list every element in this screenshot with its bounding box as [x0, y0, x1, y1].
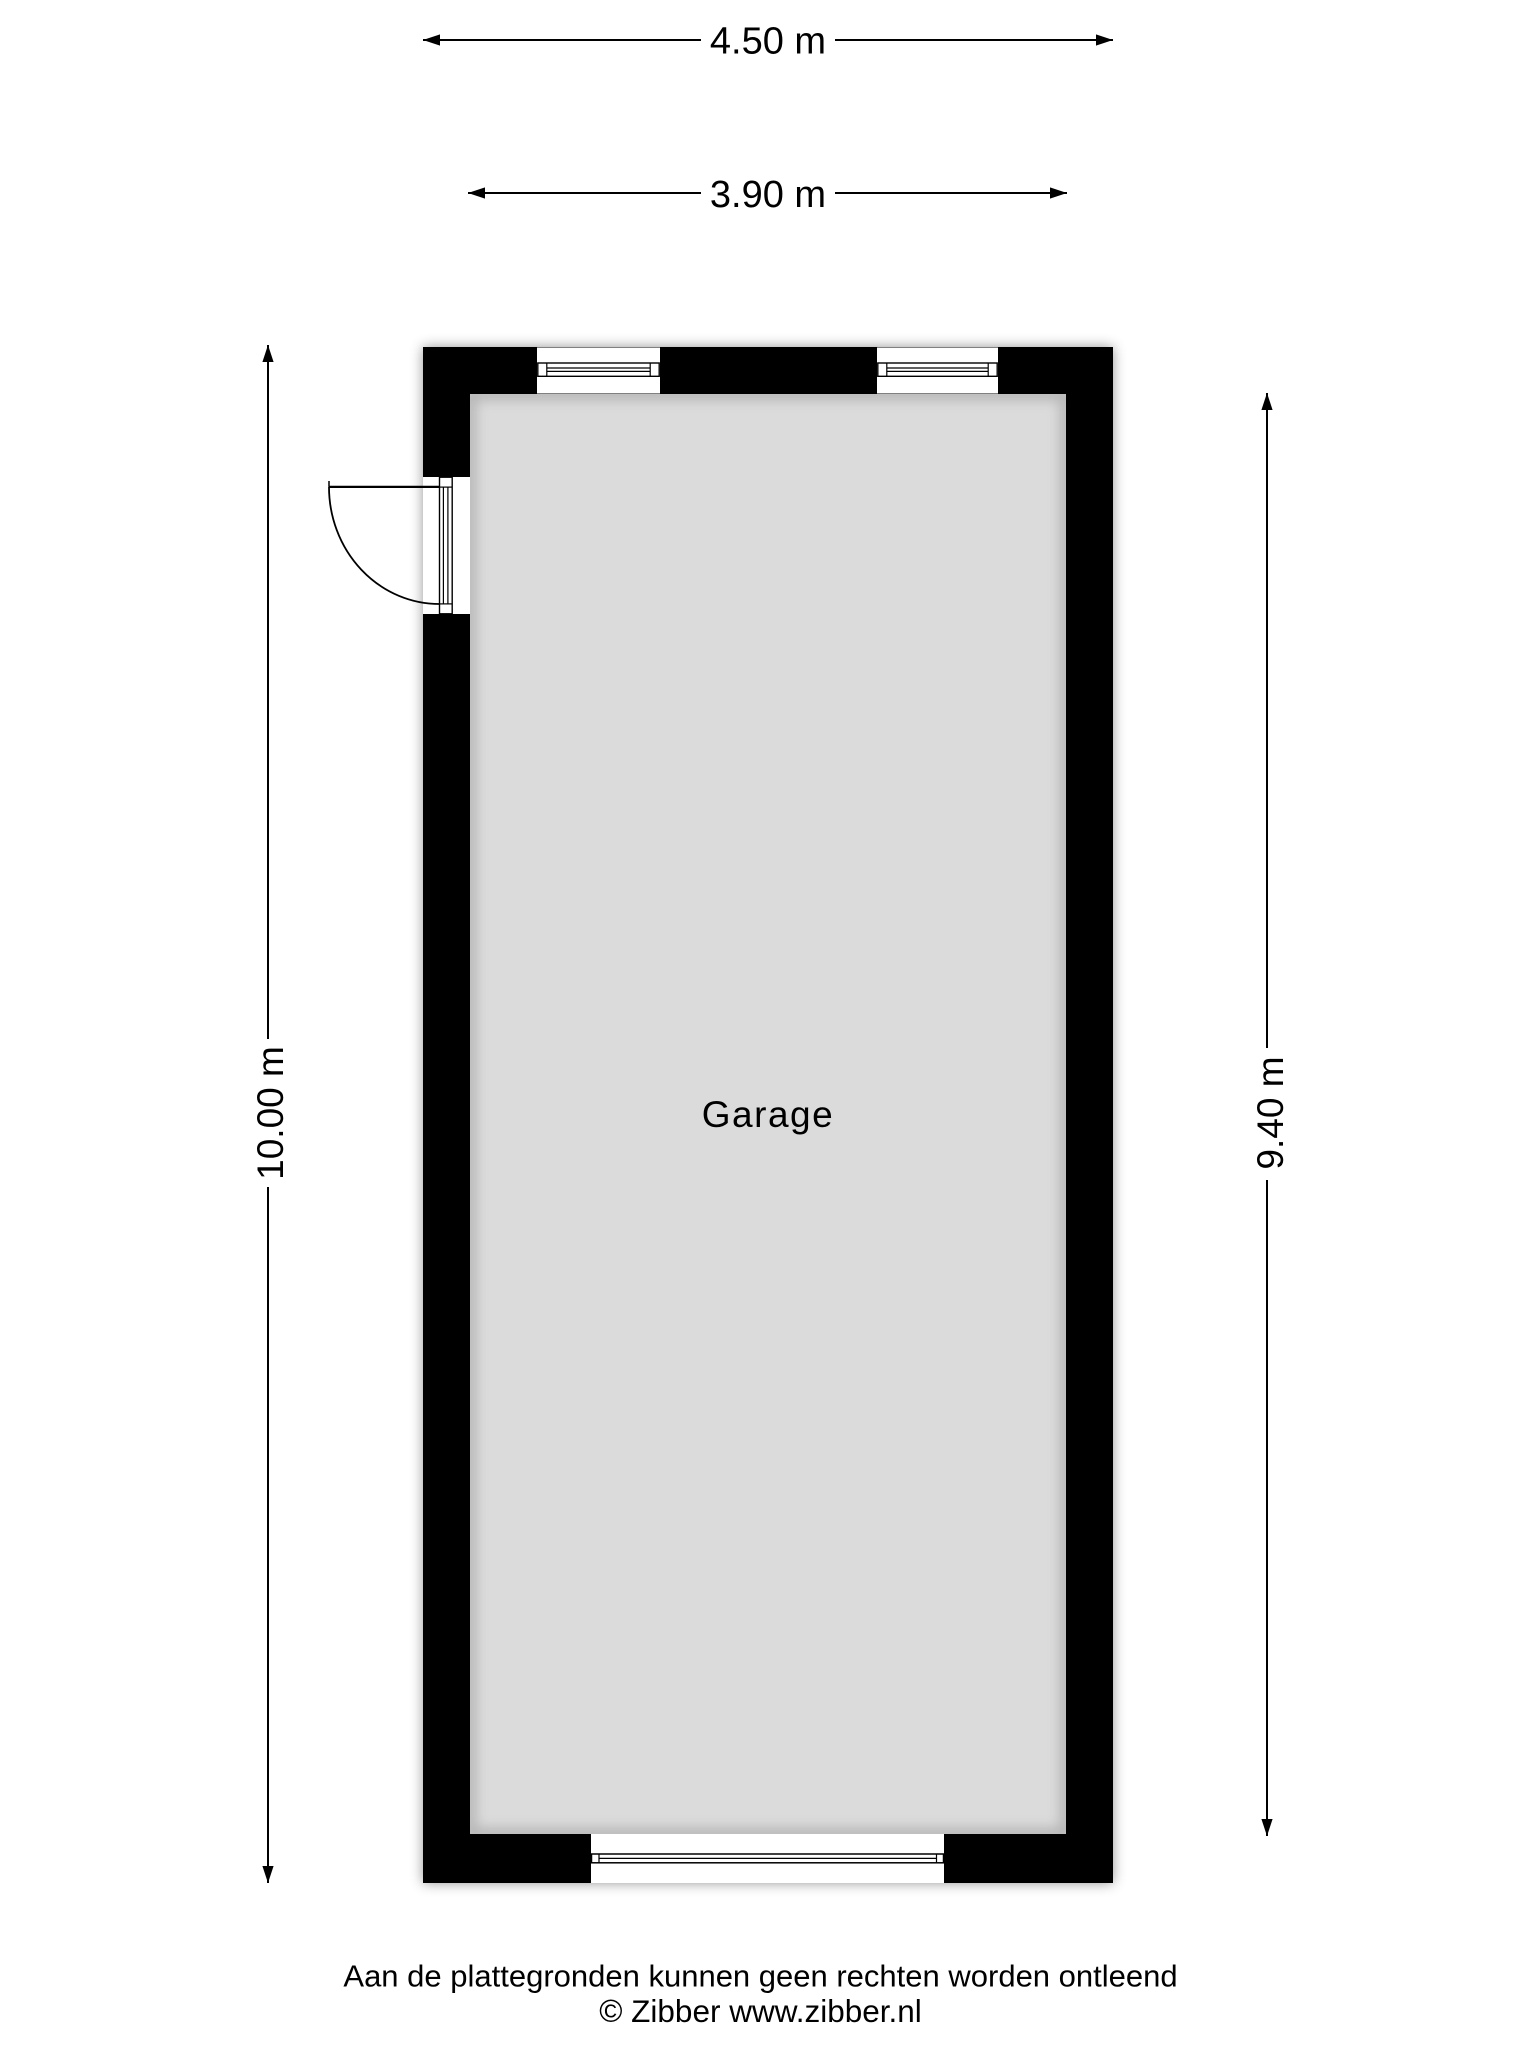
svg-text:© Zibber www.zibber.nl: © Zibber www.zibber.nl: [599, 1993, 922, 2029]
svg-text:4.50 m: 4.50 m: [710, 21, 826, 63]
svg-text:9.40 m: 9.40 m: [1250, 1056, 1291, 1169]
svg-text:Garage: Garage: [702, 1094, 834, 1135]
svg-text:10.00 m: 10.00 m: [250, 1046, 291, 1180]
svg-text:Aan de plattegronden kunnen ge: Aan de plattegronden kunnen geen rechten…: [343, 1959, 1177, 1994]
svg-text:3.90 m: 3.90 m: [710, 174, 826, 216]
